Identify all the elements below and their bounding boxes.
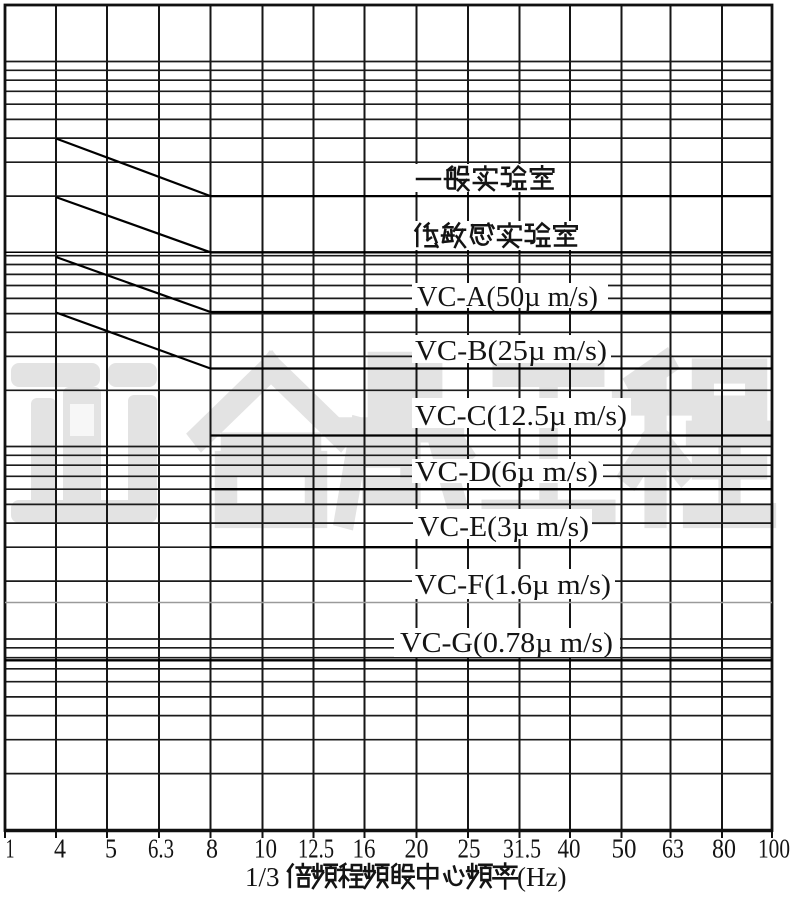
svg-text:VC-F(1.6µ m/s): VC-F(1.6µ m/s) [415,570,611,601]
svg-text:VC-D(6µ m/s): VC-D(6µ m/s) [415,457,598,488]
svg-text:1: 1 [6,834,15,864]
svg-text:(Hz): (Hz) [517,862,566,892]
svg-text:5: 5 [105,834,117,864]
svg-text:VC-B(25µ m/s): VC-B(25µ m/s) [415,336,607,367]
svg-text:VC-A(50µ m/s): VC-A(50µ m/s) [417,282,598,313]
svg-text:6.3: 6.3 [148,834,174,864]
svg-text:31.5: 31.5 [503,834,541,864]
svg-text:10: 10 [254,834,277,864]
svg-text:25: 25 [458,834,481,864]
svg-text:20: 20 [405,834,429,864]
svg-text:50: 50 [612,834,637,864]
svg-text:100: 100 [758,834,790,864]
svg-text:63: 63 [662,834,684,864]
svg-text:16: 16 [353,834,376,864]
svg-text:8: 8 [206,834,218,864]
svg-text:12.5: 12.5 [298,834,334,864]
svg-text:VC-G(0.78µ m/s): VC-G(0.78µ m/s) [400,628,613,659]
svg-text:VC-C(12.5µ m/s): VC-C(12.5µ m/s) [415,401,627,432]
svg-text:80: 80 [712,834,736,864]
svg-text:VC-E(3µ m/s): VC-E(3µ m/s) [418,512,589,543]
svg-text:4: 4 [54,834,66,864]
svg-text:40: 40 [558,834,581,864]
svg-text:1/3: 1/3 [245,862,280,892]
